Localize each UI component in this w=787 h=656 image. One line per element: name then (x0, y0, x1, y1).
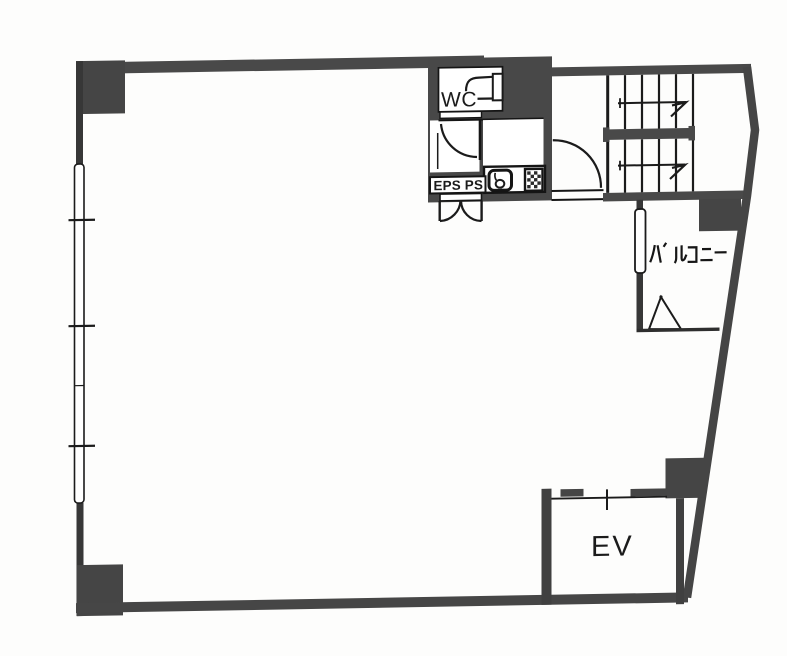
svg-text:EV: EV (591, 530, 634, 563)
svg-text:EPS PS: EPS PS (434, 177, 484, 193)
svg-text:WC: WC (441, 88, 477, 112)
